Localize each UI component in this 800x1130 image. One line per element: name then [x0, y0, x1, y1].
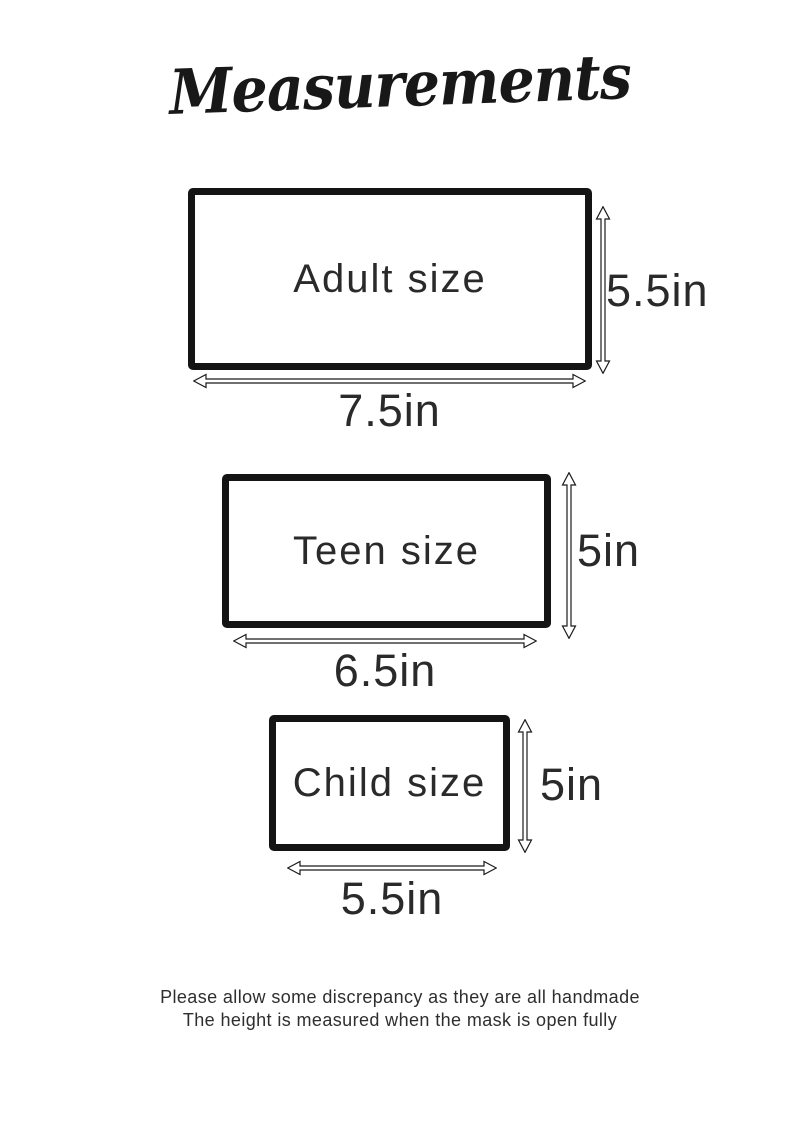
- adult-height-value: 5.5in: [606, 268, 709, 313]
- page-title: Measurements: [31, 35, 769, 134]
- child-size-label: Child size: [293, 761, 486, 806]
- teen-height-value: 5in: [577, 528, 640, 573]
- adult-width-value: 7.5in: [193, 388, 586, 433]
- teen-size-label: Teen size: [293, 529, 480, 574]
- adult-size-label: Adult size: [293, 257, 486, 302]
- footer-disclaimer: Please allow some discrepancy as they ar…: [0, 986, 800, 1031]
- child-width-value: 5.5in: [287, 876, 497, 921]
- adult-size-box: Adult size: [188, 188, 592, 370]
- child-size-box: Child size: [269, 715, 510, 851]
- footer-line-1: Please allow some discrepancy as they ar…: [0, 986, 800, 1009]
- footer-line-2: The height is measured when the mask is …: [0, 1009, 800, 1032]
- child-height-value: 5in: [540, 762, 603, 807]
- teen-size-box: Teen size: [222, 474, 551, 628]
- child-height-double-arrow-icon: [517, 719, 533, 853]
- teen-width-value: 6.5in: [233, 648, 537, 693]
- teen-height-double-arrow-icon: [561, 472, 577, 639]
